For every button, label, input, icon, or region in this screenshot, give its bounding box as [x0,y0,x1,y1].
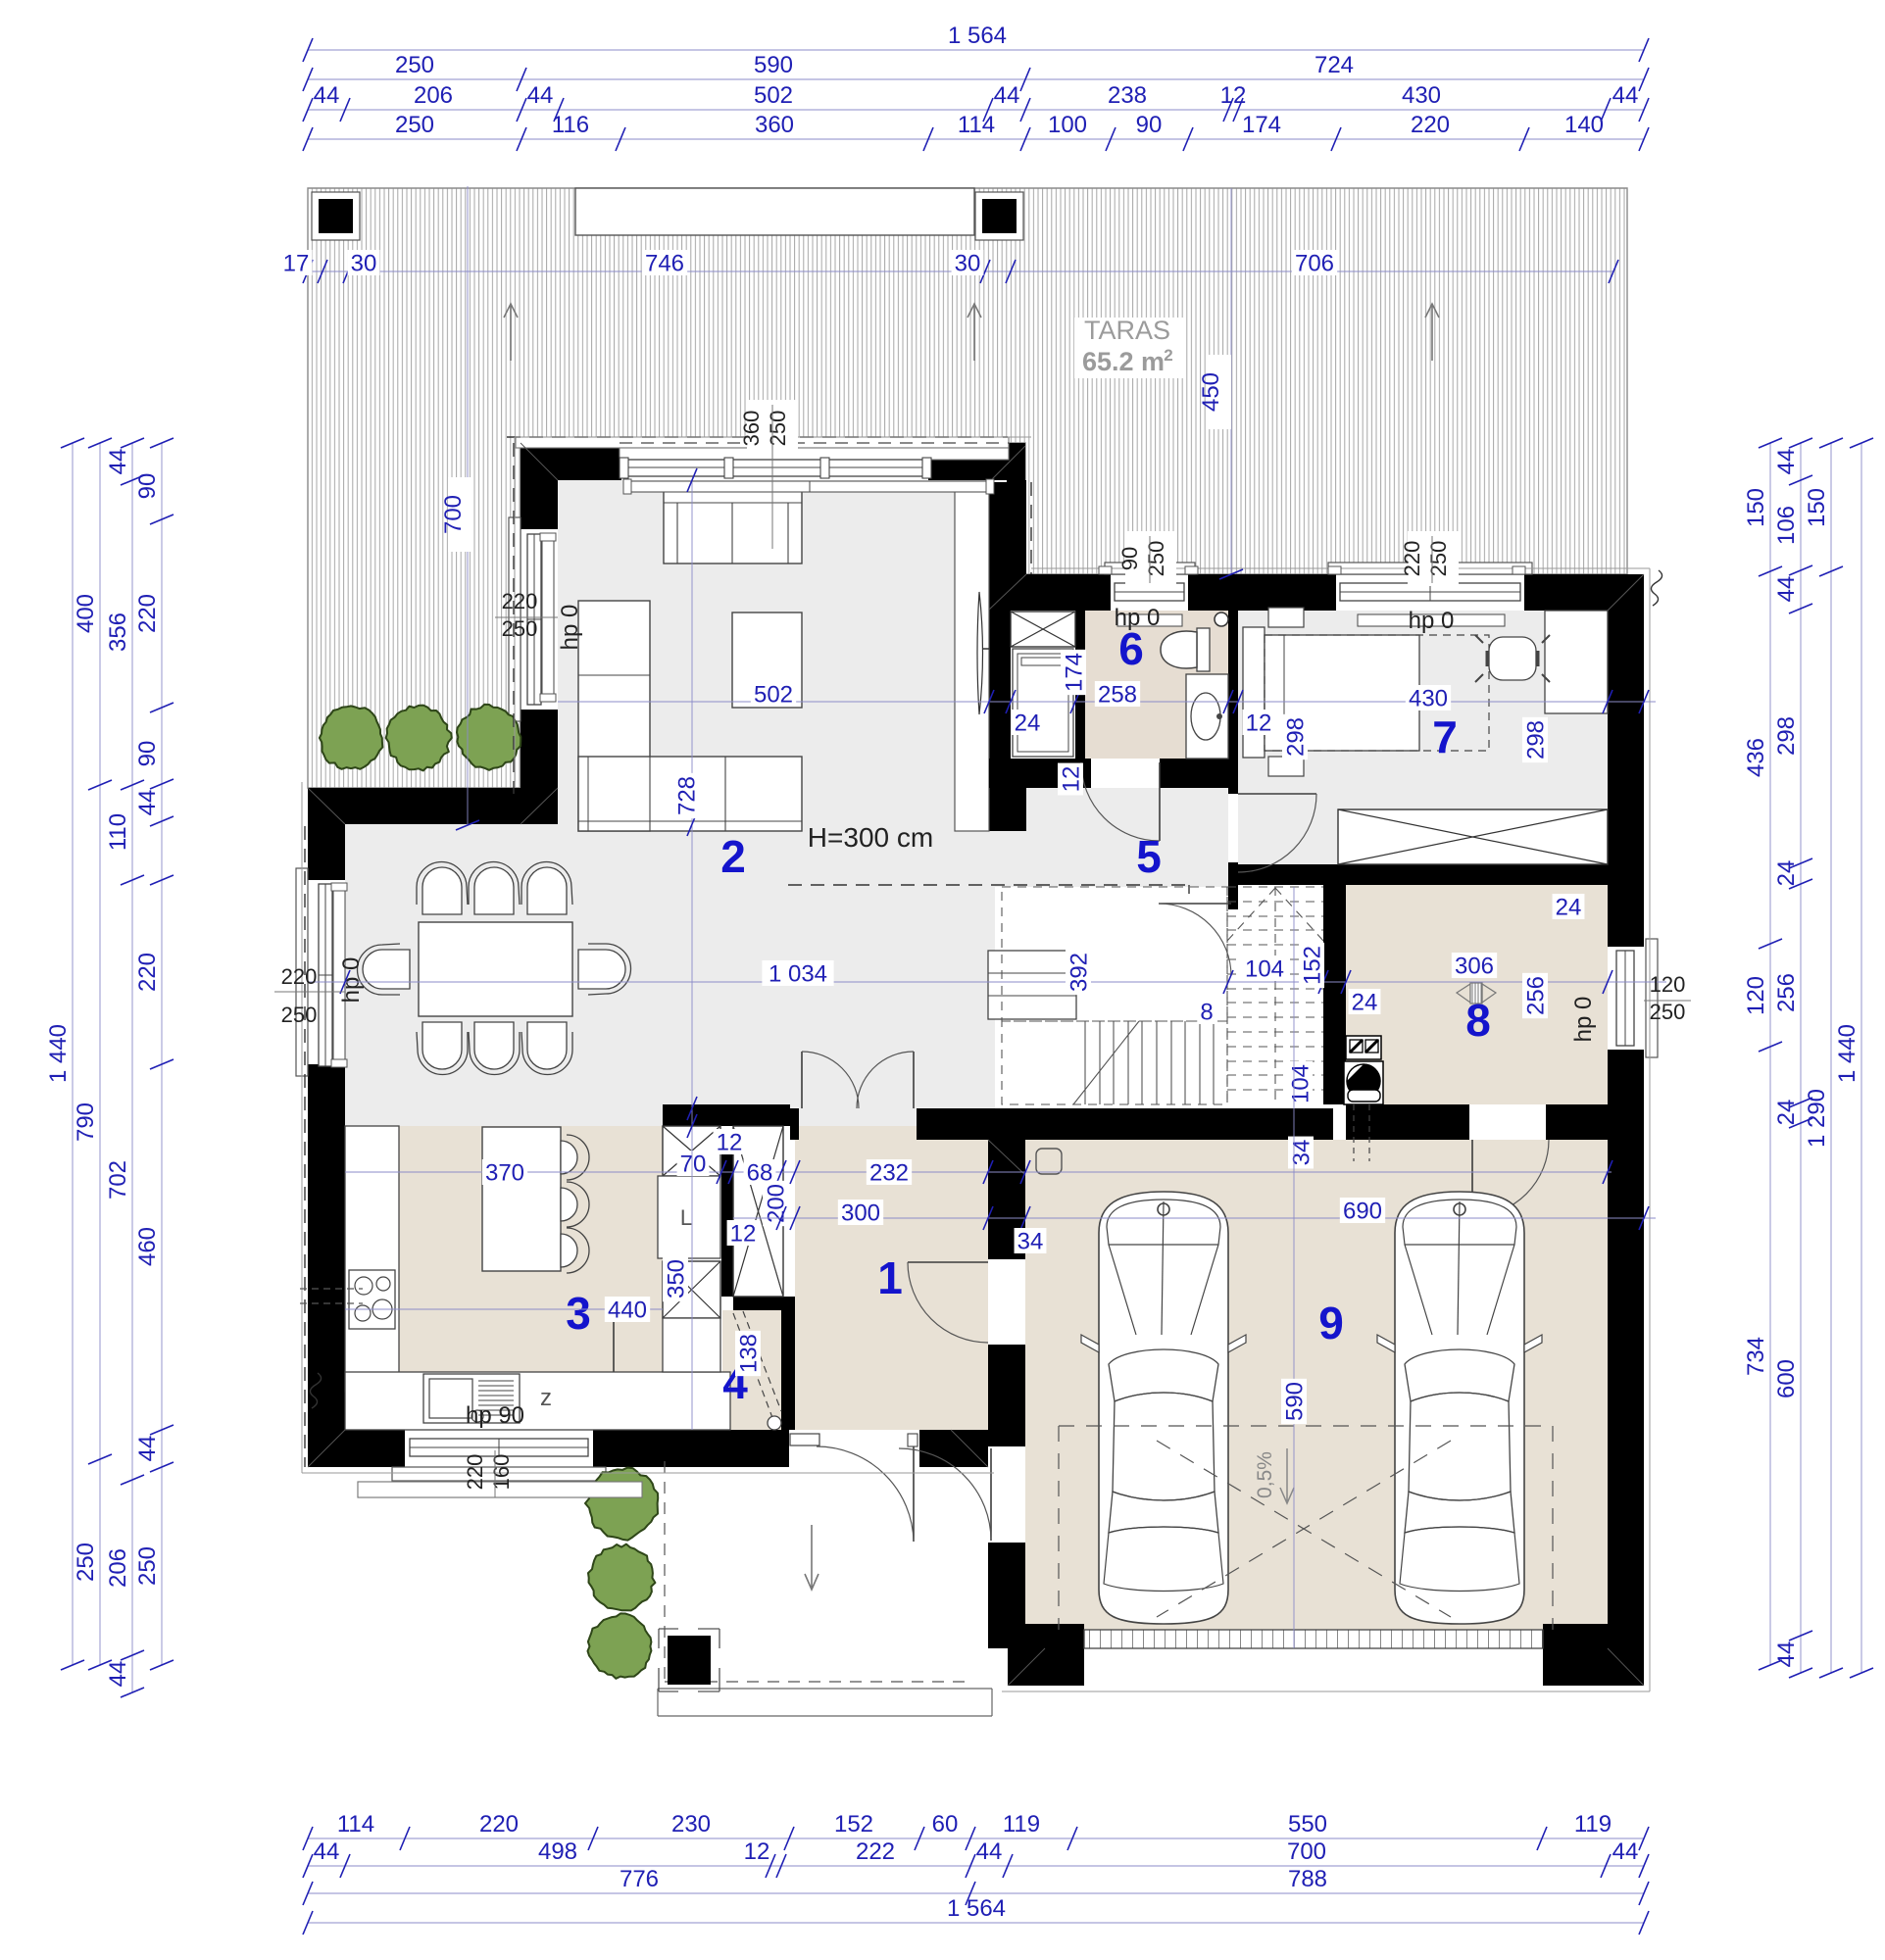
svg-text:734: 734 [1743,1337,1769,1376]
svg-text:700: 700 [1287,1838,1326,1865]
svg-text:24: 24 [1352,989,1378,1015]
svg-text:790: 790 [73,1102,99,1142]
svg-text:450: 450 [1198,372,1224,412]
svg-text:90: 90 [1117,547,1142,570]
svg-text:220: 220 [281,964,318,989]
svg-text:12: 12 [744,1838,770,1865]
svg-text:hp 0: hp 0 [557,605,583,651]
svg-text:788: 788 [1288,1866,1327,1892]
svg-text:12: 12 [1220,82,1247,109]
svg-text:90: 90 [134,741,161,767]
svg-text:250: 250 [1144,541,1168,577]
svg-text:724: 724 [1315,52,1354,78]
svg-text:hp 0: hp 0 [338,957,365,1004]
svg-text:220: 220 [134,953,161,992]
svg-text:306: 306 [1455,953,1494,979]
svg-text:44: 44 [1612,82,1639,109]
svg-text:690: 690 [1343,1198,1382,1224]
svg-text:44: 44 [105,1661,131,1688]
svg-text:298: 298 [1773,716,1800,756]
svg-text:258: 258 [1098,681,1137,708]
svg-text:44: 44 [1773,449,1800,475]
svg-text:298: 298 [1282,717,1309,757]
svg-text:TARAS: TARAS [1084,316,1170,345]
svg-text:65.2 m: 65.2 m [1082,347,1165,376]
svg-text:440: 440 [608,1297,647,1323]
svg-text:700: 700 [440,495,467,534]
svg-text:160: 160 [489,1454,514,1491]
svg-text:114: 114 [958,112,995,138]
svg-text:250: 250 [281,1003,318,1027]
svg-text:24: 24 [1556,894,1582,920]
svg-text:250: 250 [1650,1000,1686,1024]
svg-text:222: 222 [856,1838,895,1865]
svg-text:12: 12 [1058,766,1084,793]
svg-text:24: 24 [1015,710,1041,736]
svg-text:3: 3 [566,1288,591,1339]
svg-text:256: 256 [1773,973,1800,1012]
svg-text:1 440: 1 440 [45,1024,72,1083]
svg-text:44: 44 [314,1838,340,1865]
svg-text:728: 728 [673,776,700,815]
svg-text:hp 90: hp 90 [466,1402,524,1429]
svg-text:17: 17 [283,250,310,276]
svg-text:34: 34 [1017,1228,1044,1254]
svg-text:1 290: 1 290 [1804,1089,1830,1148]
svg-text:116: 116 [552,112,589,138]
svg-text:298: 298 [1522,720,1549,759]
svg-text:44: 44 [314,82,340,109]
svg-text:550: 550 [1288,1811,1327,1837]
svg-text:24: 24 [1773,860,1800,887]
svg-text:250: 250 [73,1543,99,1582]
svg-text:206: 206 [105,1548,131,1588]
svg-text:250: 250 [395,112,434,138]
svg-text:206: 206 [414,82,453,109]
svg-text:250: 250 [1426,541,1451,577]
svg-text:44: 44 [105,449,131,475]
svg-text:590: 590 [754,52,793,78]
svg-text:120: 120 [1743,976,1769,1015]
svg-text:502: 502 [754,681,793,708]
svg-text:174: 174 [1061,653,1087,692]
svg-text:1 564: 1 564 [947,1895,1006,1922]
svg-text:250: 250 [502,616,538,641]
svg-text:44: 44 [1773,1641,1800,1668]
svg-text:H=300 cm: H=300 cm [808,822,933,853]
svg-text:44: 44 [994,82,1020,109]
svg-text:220: 220 [479,1811,519,1837]
svg-text:0,5%: 0,5% [1254,1451,1276,1498]
svg-text:34: 34 [1288,1140,1315,1166]
svg-text:114: 114 [337,1811,374,1837]
svg-text:220: 220 [1400,541,1424,577]
svg-text:44: 44 [527,82,554,109]
svg-text:152: 152 [1299,946,1325,985]
svg-text:8: 8 [1465,995,1491,1046]
svg-text:5: 5 [1136,831,1162,882]
svg-text:776: 776 [620,1866,659,1892]
svg-text:L: L [680,1205,692,1230]
svg-text:1 564: 1 564 [948,23,1007,49]
svg-text:104: 104 [1245,955,1284,982]
svg-text:200: 200 [763,1184,789,1223]
svg-text:220: 220 [1411,112,1450,138]
svg-text:9: 9 [1318,1298,1344,1348]
svg-text:hp 0: hp 0 [1409,608,1455,634]
svg-text:90: 90 [1136,112,1163,138]
svg-text:702: 702 [105,1160,131,1200]
svg-text:150: 150 [1804,488,1830,527]
svg-text:150: 150 [1743,488,1769,527]
svg-text:250: 250 [134,1546,161,1586]
svg-text:hp 0: hp 0 [1570,997,1597,1043]
svg-text:600: 600 [1773,1359,1800,1398]
svg-text:256: 256 [1522,976,1549,1015]
svg-text:44: 44 [1612,1838,1639,1865]
svg-text:7: 7 [1432,711,1458,762]
svg-text:119: 119 [1003,1811,1040,1837]
svg-text:119: 119 [1574,1811,1612,1837]
svg-text:430: 430 [1402,82,1441,109]
svg-text:100: 100 [1048,112,1087,138]
svg-text:z: z [540,1385,552,1411]
svg-text:24: 24 [1773,1100,1800,1126]
svg-text:220: 220 [502,589,538,613]
svg-text:1: 1 [877,1252,903,1303]
svg-text:2: 2 [1164,346,1172,365]
svg-text:746: 746 [645,250,684,276]
svg-text:30: 30 [351,250,377,276]
svg-text:250: 250 [395,52,434,78]
svg-text:12: 12 [1246,710,1272,736]
svg-text:400: 400 [73,594,99,633]
svg-text:706: 706 [1295,250,1334,276]
svg-text:460: 460 [134,1227,161,1266]
svg-text:106: 106 [1773,506,1800,545]
svg-text:90: 90 [134,473,161,500]
svg-text:220: 220 [463,1454,487,1491]
svg-text:590: 590 [1281,1382,1308,1421]
svg-text:44: 44 [976,1838,1003,1865]
svg-text:110: 110 [105,813,131,851]
svg-text:152: 152 [834,1811,873,1837]
svg-text:498: 498 [538,1838,577,1865]
svg-text:30: 30 [955,250,981,276]
svg-text:232: 232 [869,1159,909,1186]
svg-text:360: 360 [739,411,764,447]
svg-text:104: 104 [1287,1064,1314,1103]
svg-text:436: 436 [1743,738,1769,777]
svg-text:70: 70 [680,1151,707,1177]
svg-text:44: 44 [134,790,161,816]
svg-text:350: 350 [663,1259,689,1298]
svg-text:370: 370 [485,1159,524,1186]
svg-text:238: 238 [1108,82,1147,109]
svg-text:300: 300 [841,1200,880,1226]
svg-text:230: 230 [671,1811,711,1837]
svg-text:44: 44 [1773,576,1800,603]
svg-text:140: 140 [1564,112,1604,138]
svg-text:120: 120 [1650,972,1686,997]
svg-text:250: 250 [766,411,790,447]
svg-text:502: 502 [754,82,793,109]
svg-text:356: 356 [105,612,131,652]
svg-text:138: 138 [735,1334,762,1373]
svg-text:12: 12 [730,1220,757,1247]
svg-text:hp 0: hp 0 [1115,605,1161,631]
svg-text:430: 430 [1409,685,1448,711]
svg-text:60: 60 [932,1811,959,1837]
svg-text:12: 12 [717,1129,743,1155]
svg-text:174: 174 [1242,112,1281,138]
svg-text:1 440: 1 440 [1834,1024,1860,1083]
svg-text:1 034: 1 034 [769,960,827,987]
svg-text:44: 44 [134,1436,161,1462]
svg-text:2: 2 [720,831,746,882]
svg-text:220: 220 [134,594,161,633]
svg-text:360: 360 [755,112,794,138]
svg-text:392: 392 [1066,953,1092,992]
svg-text:8: 8 [1200,999,1213,1025]
